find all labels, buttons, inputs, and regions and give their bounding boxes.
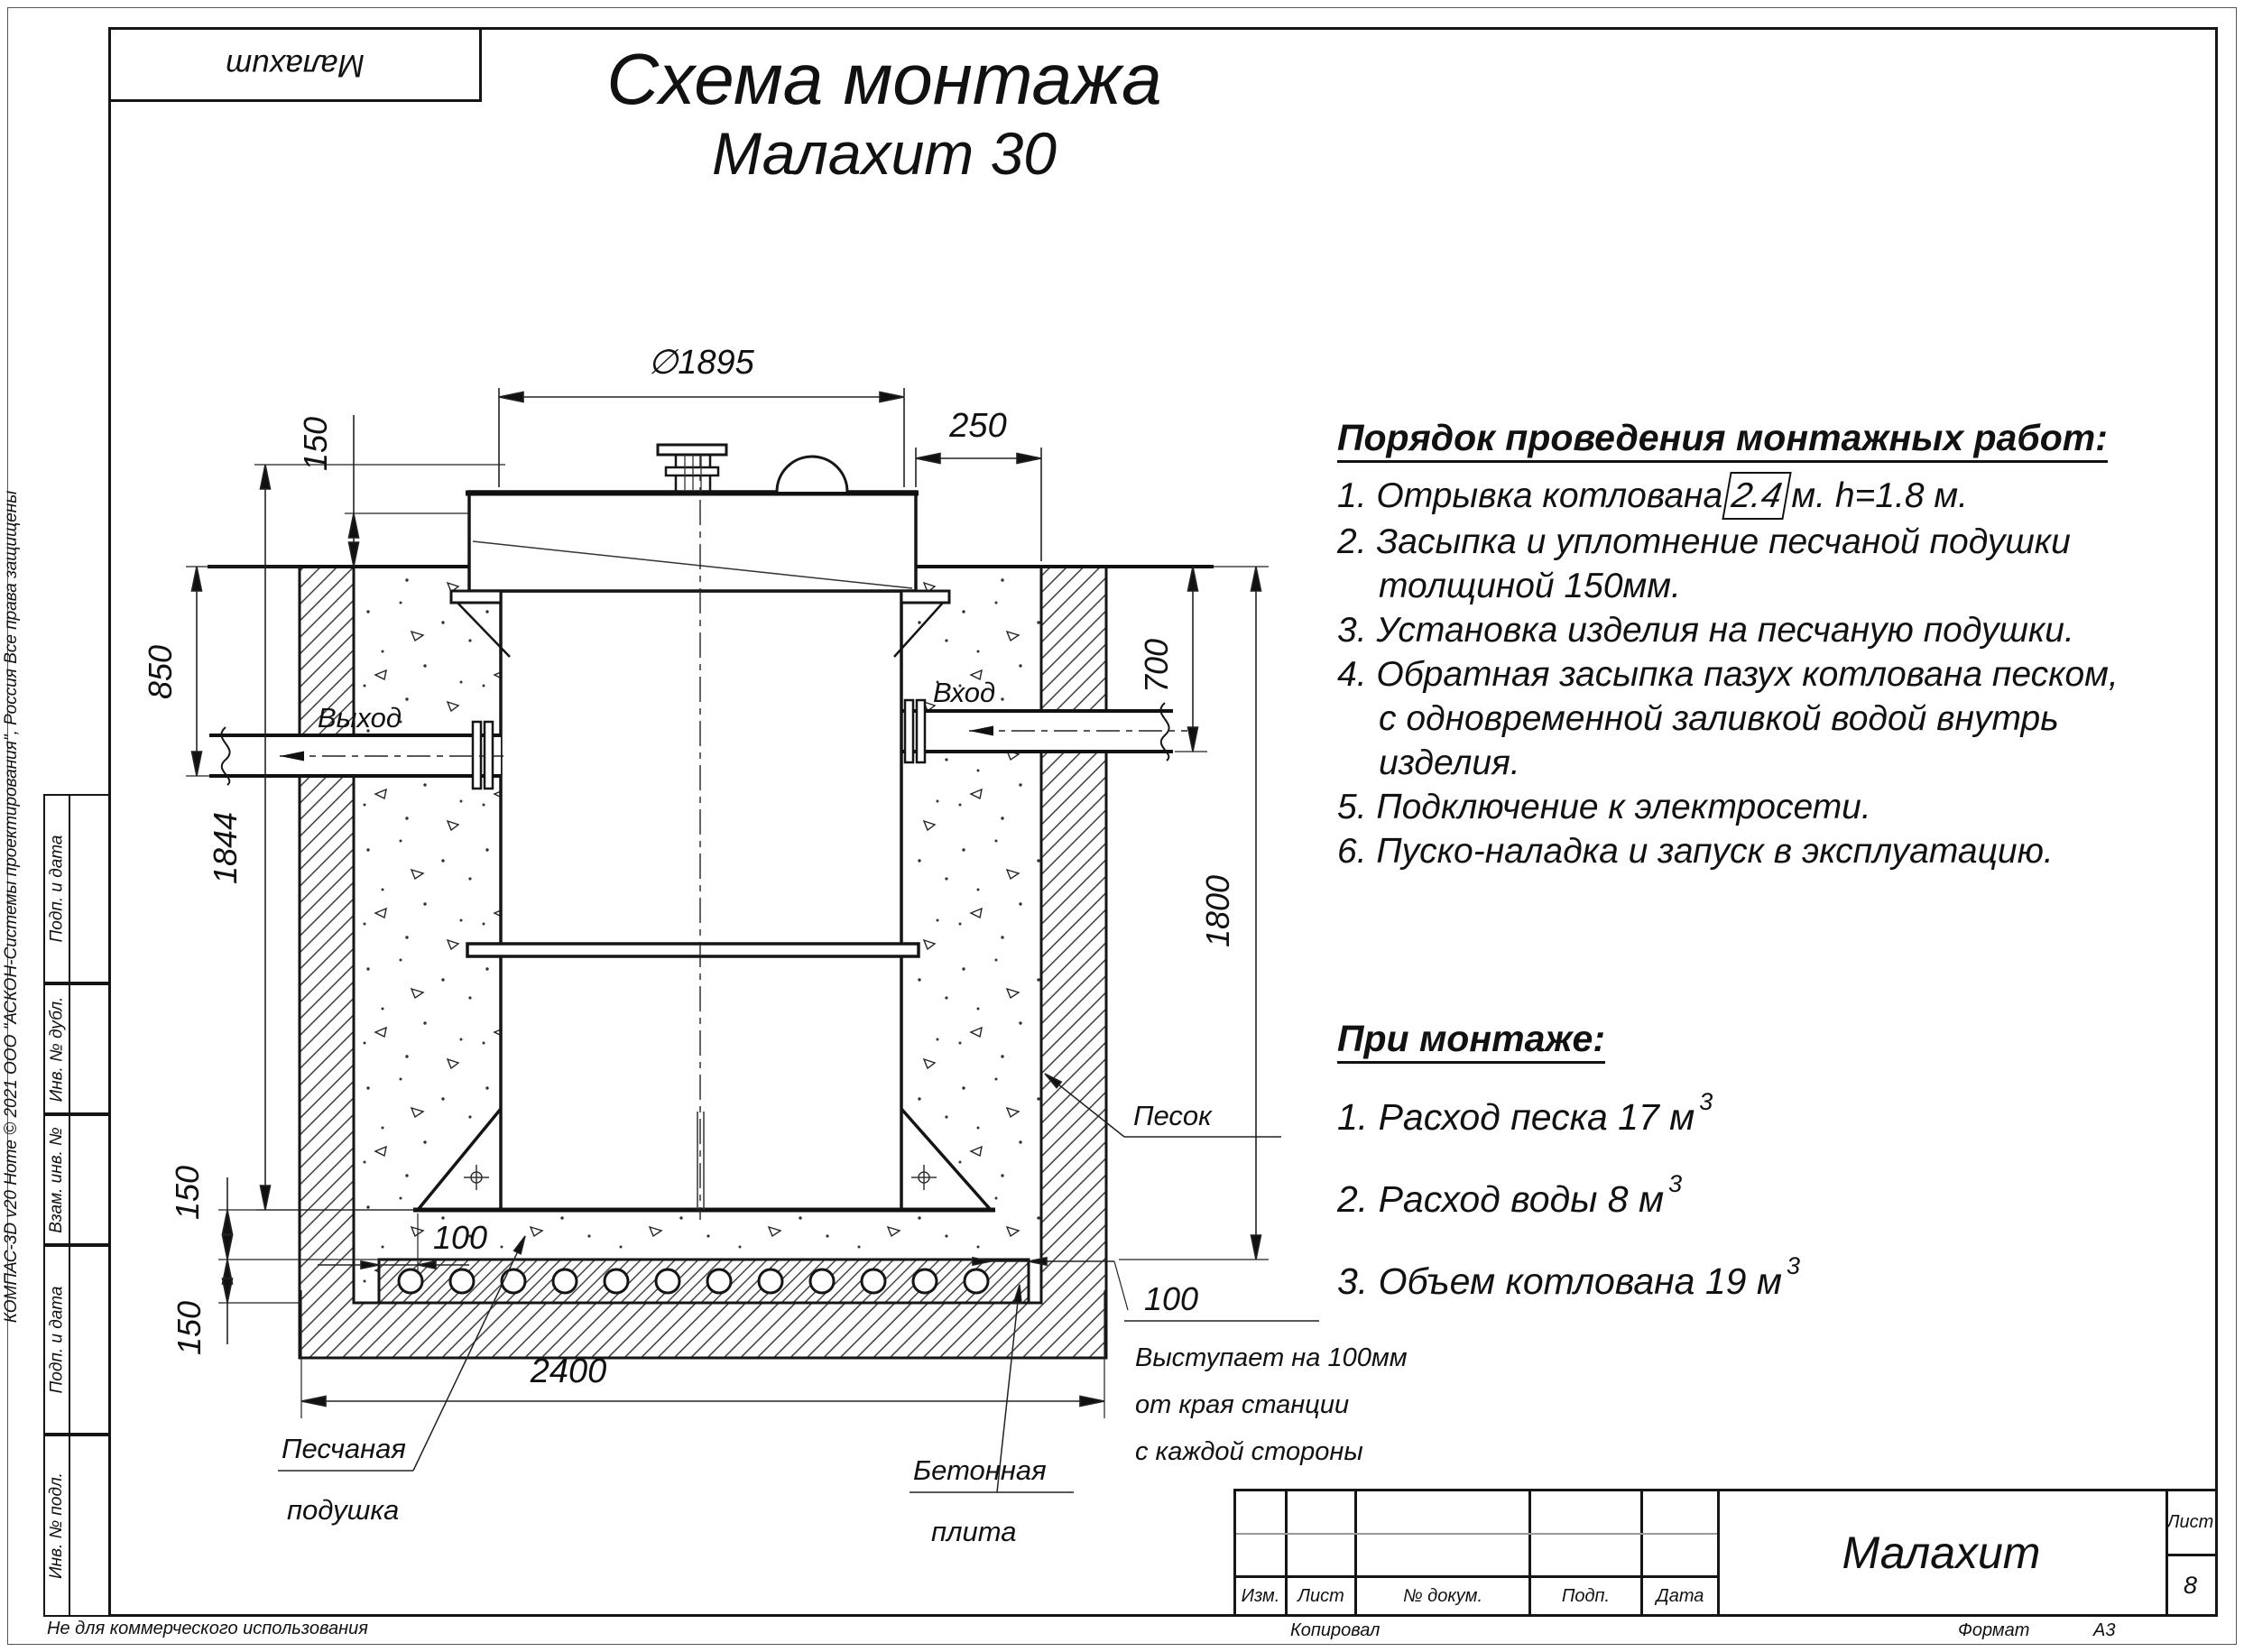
cad-copyright: КОМПАС-3D v20 Home © 2021 ООО "АСКОН-Сис…: [2, 487, 22, 1326]
tb-col-doc: № докум.: [1357, 1578, 1528, 1614]
svg-text:Бетонная: Бетонная: [913, 1454, 1047, 1486]
tank-body: [501, 591, 901, 1210]
concrete-plate: [379, 1260, 1029, 1303]
vent-pipe: [658, 445, 726, 492]
instruction-item-6: 6. Пуско-наладка и запуск в эксплуатацию…: [1337, 829, 2226, 873]
tb-col-list: Лист: [1288, 1578, 1354, 1614]
svg-text:1800: 1800: [1199, 875, 1236, 947]
svg-text:150: 150: [169, 1166, 206, 1220]
svg-text:Песок: Песок: [1133, 1100, 1213, 1131]
svg-text:∅1895: ∅1895: [648, 344, 755, 382]
svg-text:от края станции: от края станции: [1135, 1390, 1349, 1419]
note-pit-volume: 3. Объем котлована 19 м3: [1337, 1260, 2226, 1303]
format-label: Формат: [1958, 1620, 2029, 1641]
inlet-label: Вход: [933, 677, 995, 708]
drawing-sheet: Малахит Схема монтажа Малахит 30: [0, 0, 2244, 1652]
tb-col-data: Дата: [1643, 1578, 1717, 1614]
instruction-item-1: 1. Отрывка котлована2.4м. h=1.8 м.: [1337, 472, 2226, 520]
collar-left: [451, 591, 501, 603]
instruction-item-2: 2. Засыпка и уплотнение песчаной подушки: [1337, 520, 2226, 564]
svg-text:Выступает на 100мм: Выступает на 100мм: [1135, 1343, 1408, 1372]
tb-document-name: Малахит: [1717, 1491, 2166, 1614]
instruction-item-3: 3. Установка изделия на песчаную подушки…: [1337, 608, 2226, 652]
instructions-heading: Порядок проведения монтажных работ:: [1337, 417, 2226, 459]
mid-flange: [467, 944, 919, 956]
dim-right-offset: 250: [916, 407, 1041, 561]
copied-label: Копировал: [1290, 1620, 1380, 1641]
svg-text:подушка: подушка: [287, 1494, 399, 1526]
tb-col-izm: Изм.: [1236, 1578, 1285, 1614]
note-water: 2. Расход воды 8 м3: [1337, 1178, 2226, 1221]
collar-right: [901, 591, 949, 603]
outlet-label: Выход: [318, 702, 402, 734]
instruction-item-4: 4. Обратная засыпка пазух котлована песк…: [1337, 652, 2226, 697]
title-block: Изм. Лист № докум. Подп. Дата Малахит Ли…: [1233, 1489, 2218, 1617]
tb-col-podp: Подп.: [1531, 1578, 1640, 1614]
sidebar-cell-vzam-inv: Взам. инв. №: [43, 1114, 110, 1245]
dome-cover: [777, 457, 847, 492]
svg-text:2400: 2400: [530, 1352, 607, 1390]
svg-text:150: 150: [297, 417, 334, 471]
sidebar-cell-podp-data-1: Подп. и дата: [43, 794, 110, 983]
svg-text:Песчаная: Песчаная: [282, 1433, 406, 1464]
note-sand: 1. Расход песка 17 м3: [1337, 1096, 2226, 1139]
tb-sheet-number: 8: [2166, 1556, 2215, 1614]
svg-text:850: 850: [142, 645, 179, 699]
svg-text:100: 100: [1144, 1280, 1198, 1317]
installation-instructions: Порядок проведения монтажных работ: 1. О…: [1337, 417, 2226, 873]
pit-size-box: 2.4: [1722, 472, 1793, 520]
dim-plate-thickness: 150: [171, 1260, 301, 1355]
tb-sheet-label: Лист: [2166, 1491, 2215, 1554]
not-for-commercial-note: Не для коммерческого использования: [47, 1619, 368, 1639]
notes-heading: При монтаже:: [1337, 1018, 2226, 1060]
svg-text:150: 150: [171, 1301, 208, 1355]
material-notes: При монтаже: 1. Расход песка 17 м3 2. Ра…: [1337, 1018, 2226, 1343]
tank-head: [469, 492, 916, 591]
svg-text:250: 250: [948, 407, 1006, 445]
sidebar-cell-podp-data-2: Подп. и дата: [43, 1245, 110, 1435]
instruction-item-5: 5. Подключение к электросети.: [1337, 785, 2226, 829]
svg-text:100: 100: [433, 1219, 487, 1256]
svg-text:с каждой стороны: с каждой стороны: [1135, 1437, 1363, 1466]
sidebar-cell-inv-dubl: Инв. № дубл.: [43, 983, 110, 1114]
format-value: А3: [2093, 1620, 2115, 1641]
sidebar-cell-inv-podl: Инв. № подл.: [43, 1435, 110, 1617]
svg-text:1844: 1844: [207, 812, 244, 884]
svg-text:плита: плита: [931, 1516, 1017, 1547]
svg-text:700: 700: [1138, 639, 1175, 693]
